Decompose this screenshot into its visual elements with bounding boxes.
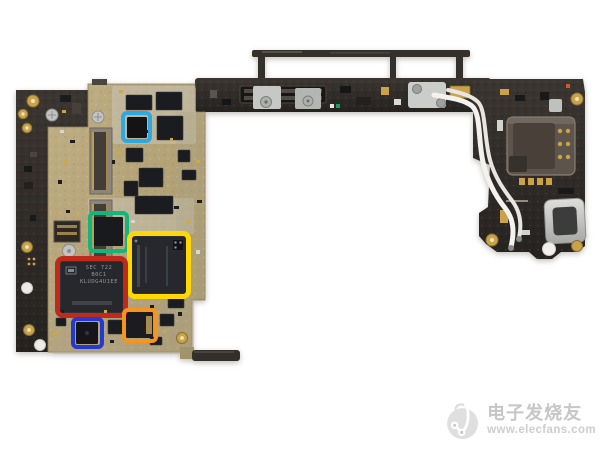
highlight-box-orange xyxy=(122,308,158,343)
storage-chip-line2: B0C1 xyxy=(76,272,122,279)
highlight-box-blue xyxy=(71,317,104,349)
storage-chip-line1: SEC 722 xyxy=(76,265,122,272)
usb-c-connector xyxy=(544,198,586,244)
watermark: 电子发烧友 www.elecfans.com xyxy=(444,398,596,442)
watermark-brand: 电子发烧友 xyxy=(487,403,596,423)
storage-chip-label: SEC 722 B0C1 KLUDG4U1EE xyxy=(76,265,122,286)
highlight-box-green xyxy=(88,211,129,253)
storage-chip-line3: KLUDG4U1EE xyxy=(76,279,122,286)
highlight-box-yellow xyxy=(127,231,191,299)
microphone xyxy=(549,99,562,112)
right-daughterboard xyxy=(473,79,586,259)
top-antenna-strip xyxy=(252,50,470,80)
motherboard-teardown-photo: SEC 722 B0C1 KLUDG4U1EE 电子发烧友 www.elecfa… xyxy=(0,0,600,450)
elecfans-logo-icon xyxy=(444,398,481,442)
watermark-url: www.elecfans.com xyxy=(487,423,596,437)
highlight-box-cyan xyxy=(121,111,152,143)
bottom-antenna-tab xyxy=(180,347,240,361)
sim-card-reader xyxy=(507,117,575,175)
